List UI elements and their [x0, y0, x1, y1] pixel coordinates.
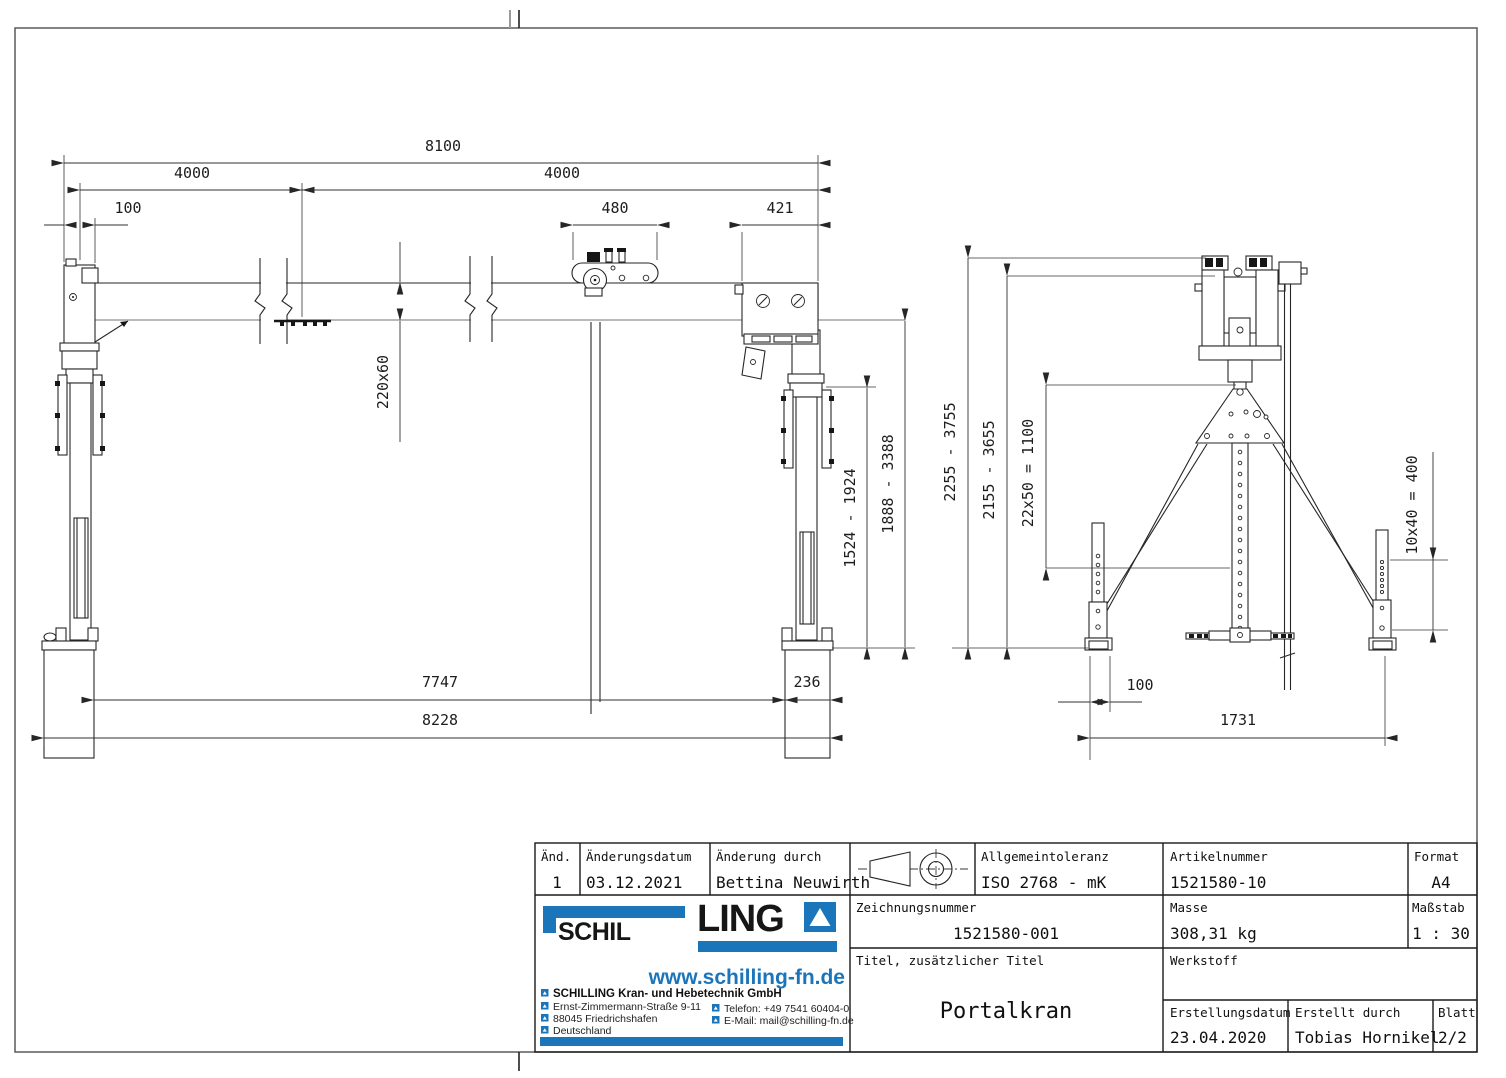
material-label: Werkstoff	[1170, 953, 1238, 968]
address-street: Ernst-Zimmermann-Straße 9-11	[553, 1001, 701, 1013]
format-value: A4	[1431, 873, 1450, 892]
dim-hoist-width: 421	[766, 199, 793, 217]
revision-date-value: 03.12.2021	[586, 873, 682, 892]
outer-leg-left	[1085, 523, 1112, 650]
dim-outer-span: 8228	[422, 711, 458, 729]
creation-date-label: Erstellungsdatum	[1170, 1005, 1290, 1020]
beam-break-right	[465, 256, 497, 342]
dim-hole-pattern-leg: 10x40 = 400	[1403, 455, 1421, 554]
sheet-value: 2/2	[1438, 1028, 1467, 1047]
created-by-value: Tobias Hornikel	[1295, 1028, 1440, 1047]
logo-bar-corner	[543, 906, 556, 933]
title-value: Portalkran	[940, 999, 1072, 1024]
dim-trolley-width: 480	[601, 199, 628, 217]
revision-label: Änd.	[541, 849, 571, 864]
dim-hole-pattern-column: 22x50 = 1100	[1019, 419, 1037, 527]
sheet-label: Blatt	[1438, 1005, 1476, 1020]
dim-total-span: 8100	[425, 137, 461, 155]
right-leg	[781, 330, 834, 758]
dim-hook-range: 2155 - 3655	[980, 420, 998, 519]
dim-beam-profile: 220x60	[374, 355, 392, 409]
gusset-plate	[1196, 389, 1284, 443]
article-number-label: Artikelnummer	[1170, 849, 1268, 864]
dim-inner-span: 7747	[422, 673, 458, 691]
title-label: Titel, zusätzlicher Titel	[856, 953, 1044, 968]
dim-leg-stroke: 1524 - 1924	[841, 468, 859, 567]
center-column	[1186, 443, 1294, 642]
revision-by-value: Bettina Neuwirth	[716, 873, 870, 892]
hoist-chain	[591, 322, 600, 714]
phone: Telefon: +49 7541 60404-0	[724, 1003, 849, 1015]
dim-foot-offset: 100	[1126, 676, 1153, 694]
revision-value: 1	[552, 873, 562, 892]
front-view: 8100 4000 4000 100 480 421 220x60 1524 -…	[42, 137, 915, 758]
drawing-sheet: 8100 4000 4000 100 480 421 220x60 1524 -…	[0, 0, 1506, 1078]
side-view: 2255 - 3755 2155 - 3655 22x50 = 1100 10x…	[941, 256, 1448, 760]
mass-label: Masse	[1170, 900, 1208, 915]
email: E-Mail: mail@schilling-fn.de	[724, 1015, 854, 1027]
dim-base-width: 1731	[1220, 711, 1256, 729]
left-leg	[42, 259, 128, 758]
logo-bar-top	[543, 906, 685, 918]
created-by-label: Erstellt durch	[1295, 1005, 1400, 1020]
address-city: 88045 Friedrichshafen	[553, 1013, 658, 1025]
projection-symbol-icon	[858, 849, 968, 889]
dim-height-range: 2255 - 3755	[941, 402, 959, 501]
trolley	[572, 248, 658, 296]
tolerance-label: Allgemeintoleranz	[981, 849, 1109, 864]
website-link[interactable]: www.schilling-fn.de	[648, 966, 845, 989]
tolerance-value: ISO 2768 - mK	[981, 873, 1107, 892]
company-logo: SCHIL LING www.schilling-fn.de SCHILLING…	[540, 898, 854, 1046]
company-name: SCHILLING Kran- und Hebetechnik GmbH	[553, 988, 782, 1000]
beam-center-plate	[274, 321, 331, 326]
logo-text-left: SCHIL	[558, 918, 631, 946]
outer-leg-right	[1369, 530, 1396, 650]
dim-clearance: 1888 - 3388	[879, 434, 897, 533]
revision-by-label: Änderung durch	[716, 849, 821, 864]
title-block: Änd. 1 Änderungsdatum 03.12.2021 Änderun…	[535, 843, 1477, 1052]
dim-foot-width: 236	[793, 673, 820, 691]
logo-bar-under	[698, 941, 837, 952]
logo-text-right: LING	[697, 898, 784, 940]
drawing-number-value: 1521580-001	[953, 924, 1059, 943]
scale-label: Maßstab	[1412, 900, 1465, 915]
dim-span-right: 4000	[544, 164, 580, 182]
side-chain-bar	[1280, 284, 1295, 690]
format-label: Format	[1414, 849, 1459, 864]
creation-date-value: 23.04.2020	[1170, 1028, 1266, 1047]
cad-canvas: 8100 4000 4000 100 480 421 220x60 1524 -…	[0, 0, 1506, 1078]
revision-date-label: Änderungsdatum	[586, 849, 691, 864]
beam-break-left	[255, 258, 292, 344]
dim-span-left: 4000	[174, 164, 210, 182]
side-view-dimensions: 2255 - 3755 2155 - 3655 22x50 = 1100 10x…	[941, 258, 1448, 760]
article-number-value: 1521580-10	[1170, 873, 1266, 892]
logo-bar-bottom	[540, 1037, 843, 1046]
address-country: Deutschland	[553, 1025, 612, 1037]
dim-offset-left: 100	[114, 199, 141, 217]
scale-value: 1 : 30	[1412, 924, 1470, 943]
drawing-number-label: Zeichnungsnummer	[856, 900, 977, 915]
mass-value: 308,31 kg	[1170, 924, 1257, 943]
